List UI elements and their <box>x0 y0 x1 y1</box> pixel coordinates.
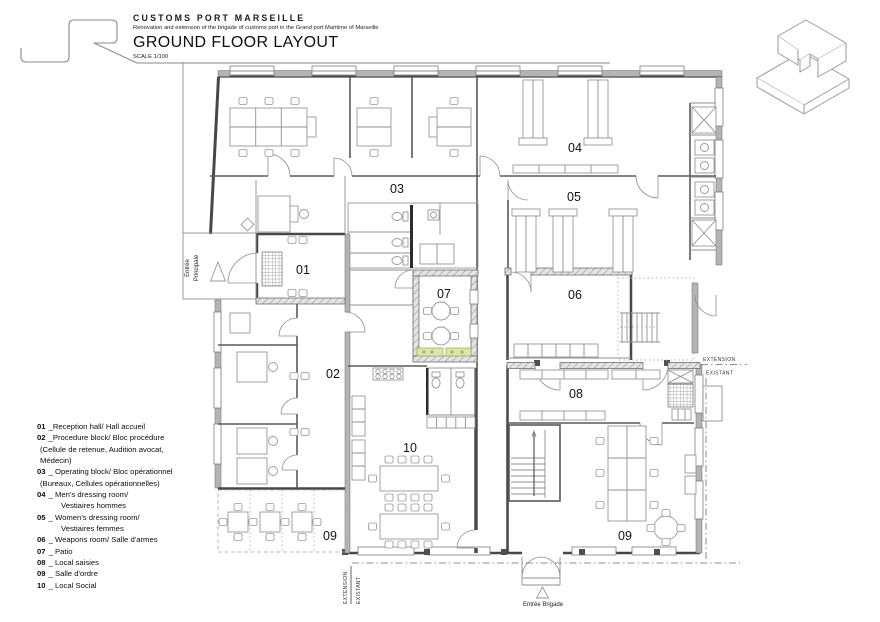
stairwell-09 <box>511 430 545 498</box>
drawing-sheet: { "title_block": { "title": "CUSTOMS POR… <box>0 0 880 622</box>
room-label-09: 09 <box>618 529 632 543</box>
floor-plan: EXTENSION EXISTANT EXTENSION EXISTANT En… <box>0 0 880 622</box>
room-label-03: 03 <box>390 182 404 196</box>
weapons-06-cabinets <box>514 344 598 357</box>
existant-label-right: EXISTANT <box>706 371 733 377</box>
entrance-arrow-icon <box>537 587 549 598</box>
main-entrance: Entrée Principale <box>185 254 226 281</box>
sanitary-center-block <box>392 210 454 265</box>
key-plan-axonometric <box>757 20 849 114</box>
furniture-dressing-04 <box>513 80 618 173</box>
room-label-06: 06 <box>568 288 582 302</box>
room-label-10: 10 <box>403 441 417 455</box>
saisies-08-furniture <box>520 370 693 420</box>
social-10-furniture <box>352 368 475 548</box>
room-label-04: 04 <box>568 141 582 155</box>
room-label-01: 01 <box>296 263 310 277</box>
room-label-07: 07 <box>437 287 451 301</box>
room-label-02: 02 <box>326 367 340 381</box>
extension-label-right: EXTENSION <box>703 357 736 363</box>
existant-label-bottom: EXISTANT <box>356 577 362 604</box>
room-label-09-terrace: 09 <box>323 529 337 543</box>
entree-principale-line2: Principale <box>194 254 200 281</box>
extension-label-bottom: EXTENSION <box>343 572 349 605</box>
room-label-08: 08 <box>569 387 583 401</box>
furniture-dressing-05 <box>512 209 637 272</box>
entree-principale-line1: Entrée <box>185 259 191 277</box>
room-label-05: 05 <box>567 190 581 204</box>
ordre-09-furniture <box>596 426 696 546</box>
patio-07-furniture <box>417 302 471 356</box>
entrance-arrow-icon <box>211 262 226 281</box>
studio-logo <box>21 20 610 63</box>
entree-brigade-label: Entrée Brigade <box>523 602 564 608</box>
